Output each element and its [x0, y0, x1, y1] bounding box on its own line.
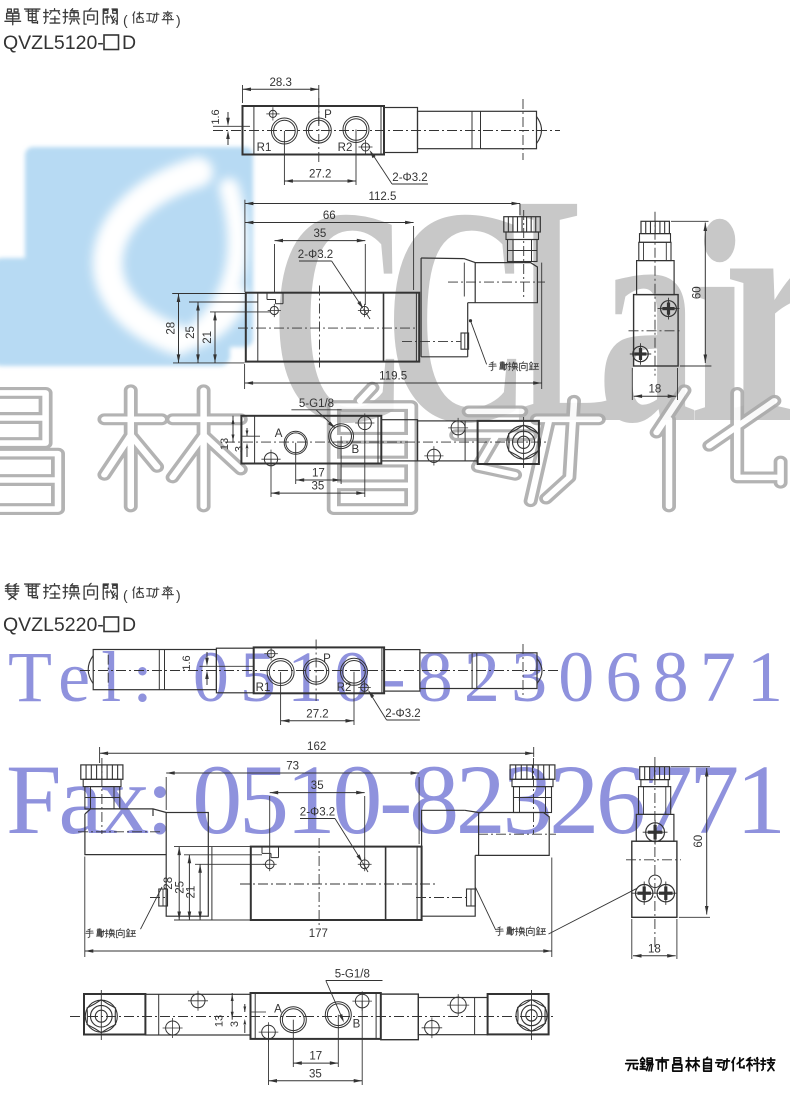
svg-text:B: B — [353, 1019, 361, 1031]
svg-text:17: 17 — [312, 468, 325, 480]
svg-text:1.6: 1.6 — [181, 655, 193, 670]
svg-text:2-Φ3.2: 2-Φ3.2 — [385, 708, 420, 720]
svg-text:35: 35 — [309, 1068, 322, 1080]
svg-text:112.5: 112.5 — [368, 191, 396, 203]
svg-text:A: A — [274, 1004, 282, 1016]
svg-text:119.5: 119.5 — [379, 371, 407, 383]
svg-text:21: 21 — [186, 886, 198, 899]
svg-text:D: D — [122, 614, 136, 636]
svg-text:1.6: 1.6 — [210, 109, 222, 124]
svg-text:35: 35 — [314, 228, 327, 240]
svg-text:13: 13 — [214, 1015, 226, 1027]
svg-text:60: 60 — [692, 286, 704, 299]
svg-text:P: P — [324, 109, 332, 121]
svg-text:2-Φ3.2: 2-Φ3.2 — [298, 249, 333, 261]
svg-text:QVZL5220-: QVZL5220- — [3, 614, 104, 636]
svg-text:27.2: 27.2 — [309, 169, 331, 181]
svg-text:a: a — [598, 145, 697, 488]
svg-text:2-Φ3.2: 2-Φ3.2 — [300, 807, 335, 819]
svg-text:B: B — [351, 444, 359, 456]
svg-text:3: 3 — [234, 446, 246, 452]
svg-text:R1: R1 — [257, 142, 272, 154]
svg-text:5-G1/8: 5-G1/8 — [299, 398, 334, 410]
svg-text:P: P — [323, 653, 331, 665]
svg-text:R2: R2 — [338, 142, 353, 154]
svg-text:Fax: 0510-82326771: Fax: 0510-82326771 — [6, 744, 786, 855]
svg-text:QVZL5120-: QVZL5120- — [3, 32, 104, 54]
svg-text:73: 73 — [286, 761, 299, 773]
svg-text:(: ( — [123, 12, 128, 28]
svg-text:2-Φ3.2: 2-Φ3.2 — [392, 172, 427, 184]
svg-text:162: 162 — [307, 741, 326, 753]
svg-text:18: 18 — [648, 943, 661, 955]
svg-text:R2: R2 — [337, 682, 352, 694]
svg-text:R1: R1 — [256, 682, 271, 694]
svg-text:27.2: 27.2 — [306, 708, 328, 720]
svg-text:35: 35 — [312, 481, 325, 493]
svg-text:): ) — [176, 587, 181, 603]
svg-text:177: 177 — [309, 928, 328, 940]
svg-text:21: 21 — [202, 331, 214, 344]
svg-text:28: 28 — [163, 877, 175, 890]
svg-text:60: 60 — [693, 835, 705, 848]
svg-text:28: 28 — [166, 322, 178, 335]
svg-text:35: 35 — [311, 780, 324, 792]
svg-text:18: 18 — [649, 384, 662, 396]
svg-text:): ) — [176, 12, 181, 28]
svg-text:66: 66 — [323, 210, 336, 222]
svg-text:5-G1/8: 5-G1/8 — [335, 969, 370, 981]
svg-text:3: 3 — [229, 1021, 241, 1027]
svg-text:17: 17 — [309, 1051, 322, 1063]
svg-text:25: 25 — [185, 326, 197, 339]
svg-text:28.3: 28.3 — [269, 77, 291, 89]
svg-text:(: ( — [123, 587, 128, 603]
svg-text:D: D — [122, 32, 136, 54]
svg-text:A: A — [275, 428, 283, 440]
svg-text:13: 13 — [219, 438, 231, 450]
